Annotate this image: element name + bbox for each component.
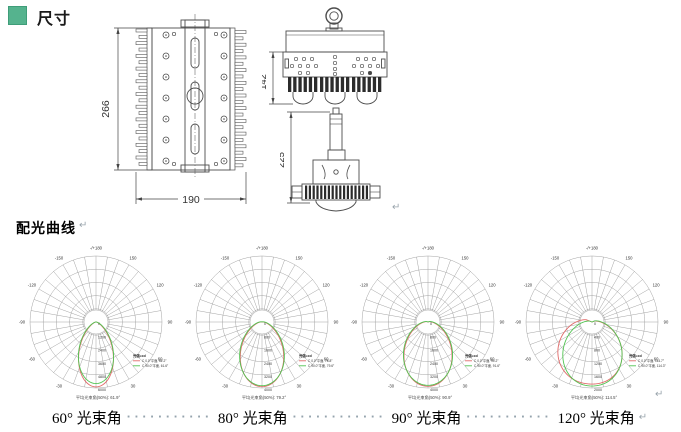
caption-90-deg: 90° 光束角 [392, 407, 462, 428]
svg-text:4800: 4800 [98, 375, 106, 379]
polar-chart-120-deg: -/+180-150150-120120-9090-6060-303004008… [512, 246, 672, 415]
svg-text:90: 90 [664, 320, 669, 325]
lifting-ring-icon [326, 8, 342, 24]
svg-text:C 90.0°平面, 91.6°: C 90.0°平面, 91.6° [474, 364, 501, 368]
svg-text:C 0.0°平面, 62.2°: C 0.0°平面, 62.2° [142, 359, 167, 363]
svg-text:3200: 3200 [430, 375, 438, 379]
svg-text:1200: 1200 [594, 362, 602, 366]
svg-text:800: 800 [264, 335, 270, 339]
svg-text:-60: -60 [525, 357, 532, 362]
svg-text:光强=cd: 光强=cd [132, 353, 146, 358]
svg-text:C 90.0°平面, 79.6°: C 90.0°平面, 79.6° [308, 364, 335, 368]
svg-text:-150: -150 [221, 256, 230, 261]
svg-text:-30: -30 [388, 384, 395, 389]
polar-grid: -/+180-150150-120120-9090-6060-303008001… [182, 246, 342, 410]
dim-width-back-view: 190 [182, 194, 200, 206]
svg-text:-90: -90 [19, 320, 26, 325]
return-mark: ↵ [79, 221, 87, 231]
polar-grid: -/+180-150150-120120-9090-6060-303001200… [16, 246, 176, 410]
drawing-side-view: 225 [280, 106, 400, 214]
svg-text:800: 800 [430, 335, 436, 339]
svg-text:150: 150 [296, 256, 304, 261]
section-title-dimensions: 尺寸 [37, 5, 71, 29]
svg-text:30: 30 [627, 384, 632, 389]
svg-text:800: 800 [594, 349, 600, 353]
svg-text:30: 30 [131, 384, 136, 389]
svg-text:1600: 1600 [594, 375, 602, 379]
svg-text:-90: -90 [185, 320, 192, 325]
svg-text:-/+180: -/+180 [90, 246, 103, 251]
caption-120-deg: 120° 光束角 [557, 407, 634, 428]
svg-text:400: 400 [594, 335, 600, 339]
svg-text:30: 30 [463, 384, 468, 389]
svg-text:-120: -120 [360, 283, 369, 288]
svg-text:-/+180: -/+180 [586, 246, 599, 251]
svg-text:90: 90 [334, 320, 339, 325]
round-body-fins [305, 186, 368, 200]
svg-text:C 90.0°平面, 114.3°: C 90.0°平面, 114.3° [638, 364, 667, 368]
svg-text:2000: 2000 [594, 388, 602, 392]
svg-text:1600: 1600 [264, 349, 272, 353]
polar-grid: -/+180-150150-120120-9090-6060-303008001… [348, 246, 508, 410]
polar-chart-60-deg: -/+180-150150-120120-9090-6060-303001200… [16, 246, 176, 415]
lens-feet [293, 92, 377, 104]
polar-chart-90-deg: -/+180-150150-120120-9090-6060-303008001… [348, 246, 508, 415]
return-mark: ↵ [639, 413, 647, 423]
svg-text:0: 0 [430, 322, 432, 326]
polar-grid: -/+180-150150-120120-9090-6060-303004008… [512, 246, 672, 410]
svg-text:-60: -60 [29, 357, 36, 362]
dot-leader: ··········· [127, 409, 213, 424]
svg-text:C 0.0°平面, 90.2°: C 0.0°平面, 90.2° [474, 359, 499, 363]
return-mark: ↵ [655, 390, 663, 400]
svg-text:-90: -90 [515, 320, 522, 325]
svg-text:光强=cd: 光强=cd [628, 353, 642, 358]
svg-text:-150: -150 [55, 256, 64, 261]
svg-text:-60: -60 [361, 357, 368, 362]
svg-text:-/+180: -/+180 [256, 246, 269, 251]
svg-text:2400: 2400 [264, 362, 272, 366]
driver-plate-holes [290, 55, 379, 75]
svg-text:平均光束角(50%): 61.9°: 平均光束角(50%): 61.9° [76, 394, 121, 401]
dim-height-side-view: 225 [280, 152, 287, 168]
svg-text:0: 0 [594, 322, 596, 326]
svg-text:120: 120 [653, 283, 661, 288]
drawing-front-view: 142 [262, 4, 392, 108]
svg-text:150: 150 [130, 256, 138, 261]
svg-text:光强=cd: 光强=cd [298, 353, 312, 358]
dim-height-front-view: 142 [262, 74, 269, 90]
svg-text:120: 120 [489, 283, 497, 288]
svg-text:-90: -90 [351, 320, 358, 325]
svg-text:1600: 1600 [430, 349, 438, 353]
svg-text:C 0.0°平面, 114.7°: C 0.0°平面, 114.7° [638, 359, 665, 363]
svg-text:光强=cd: 光强=cd [464, 353, 478, 358]
svg-text:3200: 3200 [264, 375, 272, 379]
svg-text:4000: 4000 [264, 388, 272, 392]
datasheet-page: 尺寸 266 [0, 0, 681, 432]
svg-text:平均光束角(50%): 90.9°: 平均光束角(50%): 90.9° [408, 394, 453, 401]
caption-80-deg: 80° 光束角 [218, 407, 288, 428]
dot-leader: ··········· [466, 409, 552, 424]
svg-text:-30: -30 [552, 384, 559, 389]
caption-60-deg: 60° 光束角 [52, 407, 122, 428]
section-title-curves: 配光曲线 [16, 218, 76, 238]
svg-text:-120: -120 [28, 283, 37, 288]
dimension-225 [287, 112, 330, 203]
svg-text:2400: 2400 [98, 349, 106, 353]
svg-text:-150: -150 [387, 256, 396, 261]
return-mark: ↵ [392, 203, 400, 213]
svg-text:150: 150 [462, 256, 470, 261]
svg-text:-120: -120 [524, 283, 533, 288]
lens-fin-modules [288, 77, 381, 92]
svg-text:平均光束角(50%): 79.2°: 平均光束角(50%): 79.2° [242, 394, 287, 401]
svg-text:-/+180: -/+180 [422, 246, 435, 251]
svg-text:90: 90 [168, 320, 173, 325]
svg-text:4000: 4000 [430, 388, 438, 392]
svg-text:6000: 6000 [98, 388, 106, 392]
svg-text:-120: -120 [194, 283, 203, 288]
svg-text:平均光束角(50%): 114.5°: 平均光束角(50%): 114.5° [571, 394, 618, 401]
dim-height-back-view: 266 [100, 100, 112, 118]
beam-angle-caption-row: 60° 光束角 ··········· 80° 光束角 ············… [0, 407, 681, 428]
svg-text:-30: -30 [222, 384, 229, 389]
svg-text:-60: -60 [195, 357, 202, 362]
svg-text:120: 120 [157, 283, 165, 288]
svg-text:C 0.0°平面, 78.8°: C 0.0°平面, 78.8° [308, 359, 333, 363]
svg-text:90: 90 [500, 320, 505, 325]
svg-text:30: 30 [297, 384, 302, 389]
drawing-back-view: 266 190 [100, 12, 250, 212]
svg-text:2400: 2400 [430, 362, 438, 366]
green-square-bullet-icon [8, 6, 27, 25]
svg-text:-150: -150 [551, 256, 560, 261]
svg-text:C 90.0°平面, 61.6°: C 90.0°平面, 61.6° [142, 364, 169, 368]
dot-leader: ············ [293, 409, 387, 424]
polar-chart-80-deg: -/+180-150150-120120-9090-6060-303008001… [182, 246, 342, 415]
svg-text:150: 150 [626, 256, 634, 261]
svg-text:3600: 3600 [98, 362, 106, 366]
svg-text:1200: 1200 [98, 335, 106, 339]
svg-text:-30: -30 [56, 384, 63, 389]
svg-text:120: 120 [323, 283, 331, 288]
